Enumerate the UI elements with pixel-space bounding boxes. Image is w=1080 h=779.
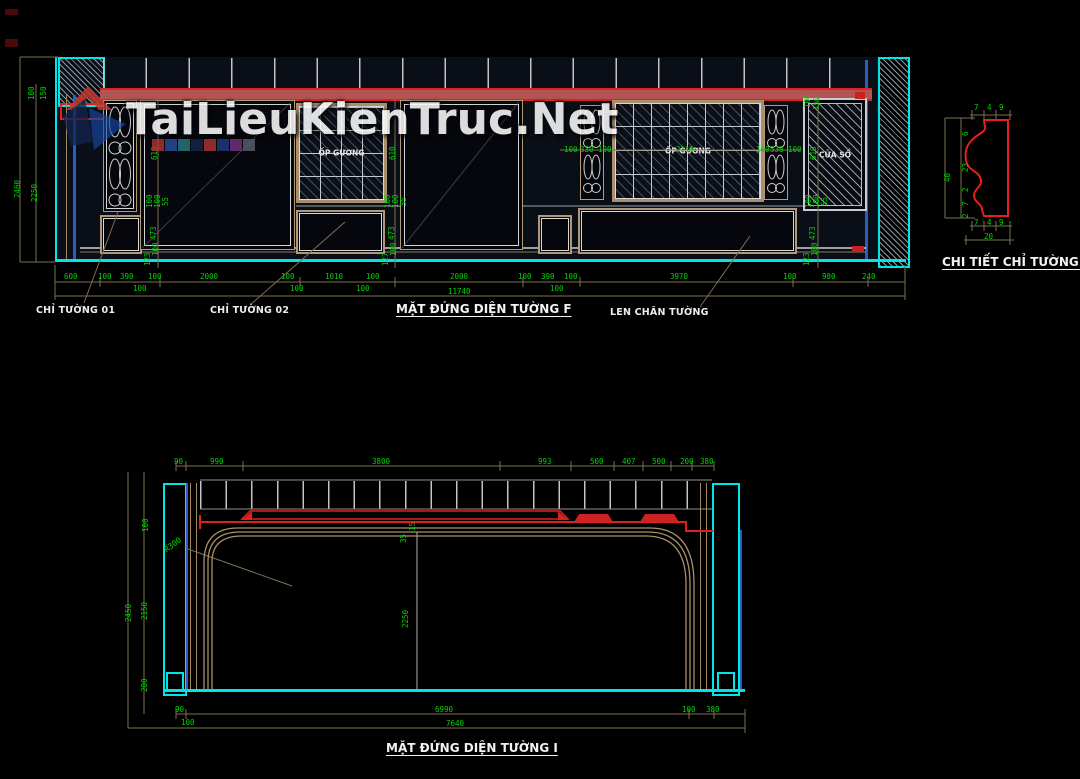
dim-label: 330 xyxy=(580,146,594,154)
dim-label: 500 xyxy=(590,458,604,466)
dim-label: 407 xyxy=(622,458,636,466)
dim-label: 200 xyxy=(680,458,694,466)
dim-label: 100 xyxy=(804,94,812,108)
dim-label: 100 xyxy=(550,285,564,293)
panel-label-op-guong: ỐP GƯƠNG xyxy=(319,149,365,157)
dim-label: 150 xyxy=(813,96,821,110)
dim-label: 100 xyxy=(788,146,802,154)
dado-panel xyxy=(538,215,572,254)
watermark-palette-square xyxy=(191,139,203,151)
dim-label: 123 xyxy=(803,252,811,266)
dim-label: 2250 xyxy=(402,610,410,628)
dim-label: 7 xyxy=(974,104,979,112)
watermark-palette-square xyxy=(217,139,229,151)
detail-view-title: CHI TIẾT CHỈ TƯỜNG 02 xyxy=(942,256,1080,268)
dim-label: 100 xyxy=(682,706,696,714)
dim-label: 100 xyxy=(811,242,819,256)
bottom-view-title: MẶT ĐỨNG DIỆN TƯỜNG I xyxy=(386,742,558,754)
dim-label: 20 xyxy=(984,233,993,241)
dim-label: 2460 xyxy=(14,180,22,198)
dim-label: 100 xyxy=(281,273,295,281)
dim-label: 100 xyxy=(564,273,578,281)
cad-canvas: ỐP GƯƠNG ỐP GƯƠNG xyxy=(0,0,1080,779)
dim-label: 100 xyxy=(518,273,532,281)
dim-label: 2000 xyxy=(450,273,468,281)
dim-label: 380 xyxy=(706,706,720,714)
dim-label: 200 xyxy=(141,678,149,692)
dim-label: 610 xyxy=(810,146,818,160)
cyan-edge-line xyxy=(55,57,57,262)
dim-label: 15 xyxy=(409,522,417,531)
dim-label: 7 xyxy=(962,201,970,206)
dim-label: 100 xyxy=(783,273,797,281)
callout-chi-tuong-02: CHỈ TƯỜNG 02 xyxy=(210,306,289,316)
dim-label: 3970 xyxy=(670,273,688,281)
dado-panel xyxy=(296,210,385,254)
dim-label: 990 xyxy=(210,458,224,466)
dim-label: 6 xyxy=(962,131,970,136)
dim-label: 7640 xyxy=(446,720,464,728)
dim-label: 127 xyxy=(382,252,390,266)
ceiling-hangers xyxy=(103,58,871,88)
dim-label: 55 xyxy=(821,197,829,206)
dim-label: 35 xyxy=(400,534,408,543)
dim-label: 9 xyxy=(999,104,1004,112)
bv-blue-line-left xyxy=(186,483,188,692)
dim-label: 600 xyxy=(64,273,78,281)
moulding-profile-curve xyxy=(966,120,1008,216)
dim-label: 23 xyxy=(962,163,970,172)
dim-label: 2450 xyxy=(125,604,133,622)
dado-panel xyxy=(100,215,142,254)
dim-label: 2150 xyxy=(141,602,149,620)
bv-tan-lines-right xyxy=(700,483,707,692)
wall-section-hatch-right xyxy=(878,57,910,268)
plot-mark xyxy=(5,39,18,47)
dim-label: 100 xyxy=(181,719,195,727)
dim-label: 500 xyxy=(652,458,666,466)
dim-label: 240 xyxy=(862,273,876,281)
dim-label: 993 xyxy=(538,458,552,466)
cove-moulding-band xyxy=(204,528,694,690)
top-view-title: MẶT ĐỨNG DIỆN TƯỜNG F xyxy=(396,303,572,315)
red-ceiling-profile xyxy=(200,511,713,531)
watermark-palette-square xyxy=(230,139,242,151)
dim-label: 473 xyxy=(388,226,396,240)
dim-label: 980 xyxy=(822,273,836,281)
dim-label: 610 xyxy=(389,146,397,160)
dim-label: 100 xyxy=(598,146,612,154)
bv-tan-lines-left xyxy=(190,483,197,692)
dim-label: 380 xyxy=(700,458,714,466)
dim-label: 150 xyxy=(40,86,48,100)
dim-label: 11740 xyxy=(448,288,471,296)
dim-label: 40 xyxy=(944,173,952,182)
dim-label: 100 xyxy=(564,146,578,154)
dim-label: 2250 xyxy=(31,184,39,202)
dim-label: 55 xyxy=(162,197,170,206)
watermark-palette-square xyxy=(152,139,164,151)
watermark-palette-square xyxy=(165,139,177,151)
dim-label: 100 xyxy=(28,86,36,100)
bv-left-wall-bar xyxy=(163,483,187,696)
red-mark xyxy=(855,92,865,99)
watermark-palette-row xyxy=(152,136,256,155)
panel-label-cua-so: CỬA SỔ xyxy=(819,151,851,159)
dim-label: 90 xyxy=(174,458,183,466)
bv-ceiling-hangers xyxy=(200,481,712,509)
dim-label: 9 xyxy=(999,219,1004,227)
dim-label: 100 xyxy=(356,285,370,293)
dim-label: 100 xyxy=(366,273,380,281)
watermark-palette-square xyxy=(204,139,216,151)
bv-floor-cyan-line xyxy=(163,689,745,692)
dim-label: 3800 xyxy=(372,458,390,466)
plot-mark xyxy=(5,9,18,15)
dim-label: 90 xyxy=(175,706,184,714)
dim-label: 6990 xyxy=(435,706,453,714)
bv-right-wall-bar xyxy=(712,483,740,696)
dim-label: 55 xyxy=(400,197,408,206)
watermark-palette-square xyxy=(243,139,255,151)
dim-label: 390 xyxy=(541,273,555,281)
dim-label: 7 xyxy=(974,219,979,227)
dim-label: 2000 xyxy=(200,273,218,281)
dim-label: 100 xyxy=(98,273,112,281)
dim-label: 100 xyxy=(142,518,150,532)
callout-len-chan-tuong: LEN CHÂN TƯỜNG xyxy=(610,308,709,318)
dim-label: 4 xyxy=(987,219,992,227)
bv-blue-line-right xyxy=(740,530,742,692)
dim-label: 330 xyxy=(770,146,784,154)
dim-label: 123 xyxy=(144,252,152,266)
dim-label: 100 xyxy=(290,285,304,293)
dado-panel-long xyxy=(578,208,797,254)
watermark-palette-square xyxy=(178,139,190,151)
dim-label: 473 xyxy=(809,226,817,240)
dim-label: 100 xyxy=(756,146,770,154)
dim-label: 390 xyxy=(120,273,134,281)
dim-label: 473 xyxy=(150,226,158,240)
dim-label: 100 xyxy=(152,242,160,256)
callout-chi-tuong-01: CHỈ TƯỜNG 01 xyxy=(36,306,115,316)
dim-label: 1010 xyxy=(325,273,343,281)
dim-label: 4 xyxy=(987,104,992,112)
red-mark xyxy=(852,246,864,252)
dim-label: 2110 xyxy=(676,146,694,154)
floor-cyan-line xyxy=(55,259,906,262)
dim-label: 100 xyxy=(148,273,162,281)
dim-label: 100 xyxy=(390,242,398,256)
dim-label: 2 xyxy=(962,187,970,192)
dim-label: 2 xyxy=(962,213,970,218)
dim-label: 100 xyxy=(133,285,147,293)
